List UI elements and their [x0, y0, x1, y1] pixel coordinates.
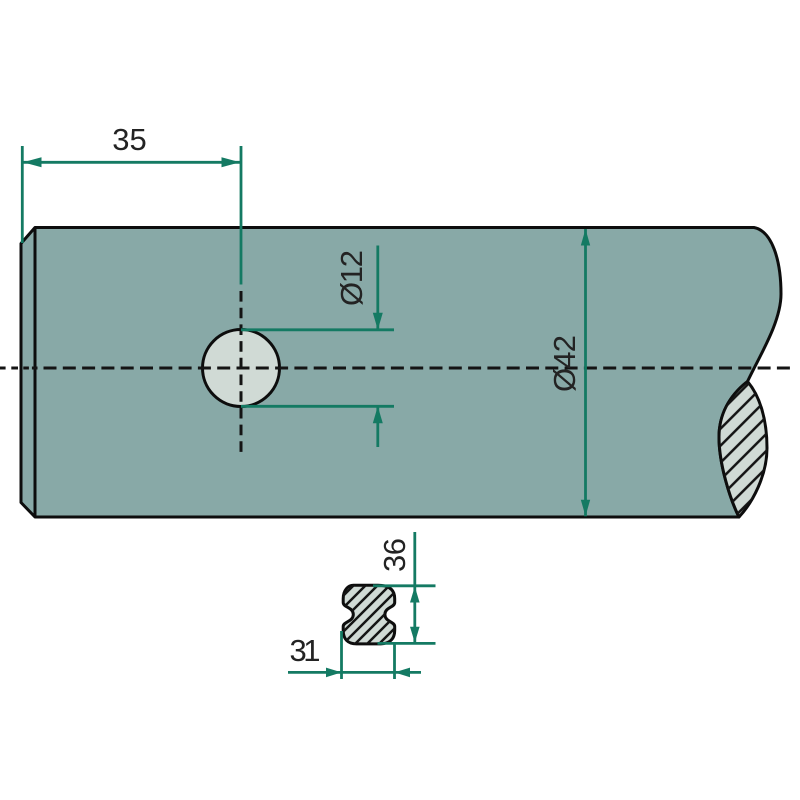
svg-text:36: 36 [377, 538, 412, 572]
svg-text:31: 31 [290, 633, 321, 668]
svg-text:35: 35 [112, 122, 147, 157]
svg-text:Ø42: Ø42 [547, 335, 582, 392]
svg-text:Ø12: Ø12 [334, 250, 369, 306]
